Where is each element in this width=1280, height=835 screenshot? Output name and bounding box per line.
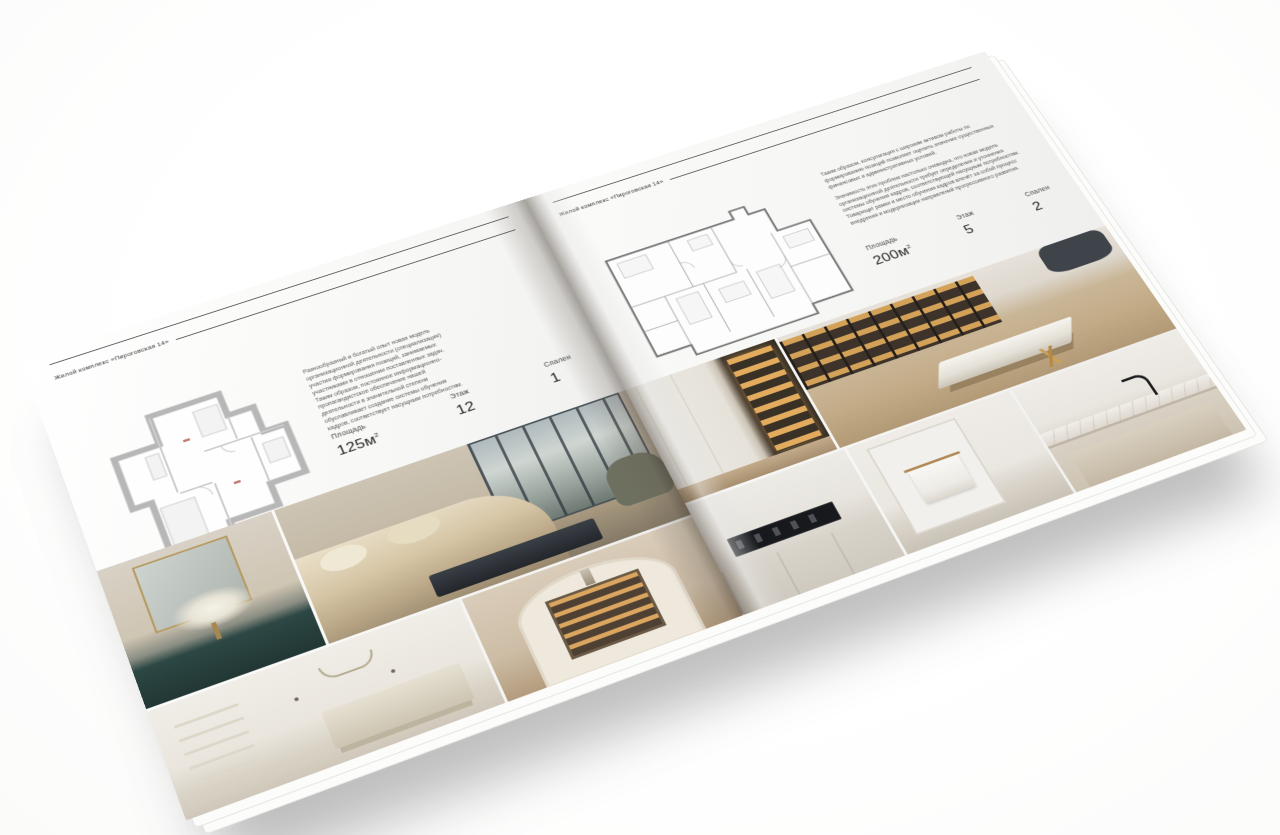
stat-bedrooms: Спален 2 [1023,184,1062,214]
stat-value: 5 [961,222,977,238]
stat-area: Площадь 200м2 [865,233,917,268]
stat-label: Этаж [955,210,975,221]
photo-detail [294,697,299,702]
photo-detail [1035,228,1117,277]
stat-bedrooms: Спален 1 [543,354,582,387]
photo-detail [318,649,377,681]
page-title: Жилой комплекс «Пироговская 14» [54,339,170,381]
stat-value: 1 [548,369,564,386]
stat-floor: Этаж 5 [955,210,986,238]
stat-value: 2 [1029,199,1046,214]
backdrop: Жилой комплекс «Пироговская 14» [0,0,1280,835]
stat-value: 12 [454,398,478,418]
header-rule [176,229,515,340]
stat-floor: Этаж 12 [449,388,479,419]
stat-label: Спален [543,354,573,369]
page-title: Жилой комплекс «Пироговская 14» [558,179,664,217]
stat-label: Спален [1023,184,1051,198]
photo-detail [174,703,263,793]
